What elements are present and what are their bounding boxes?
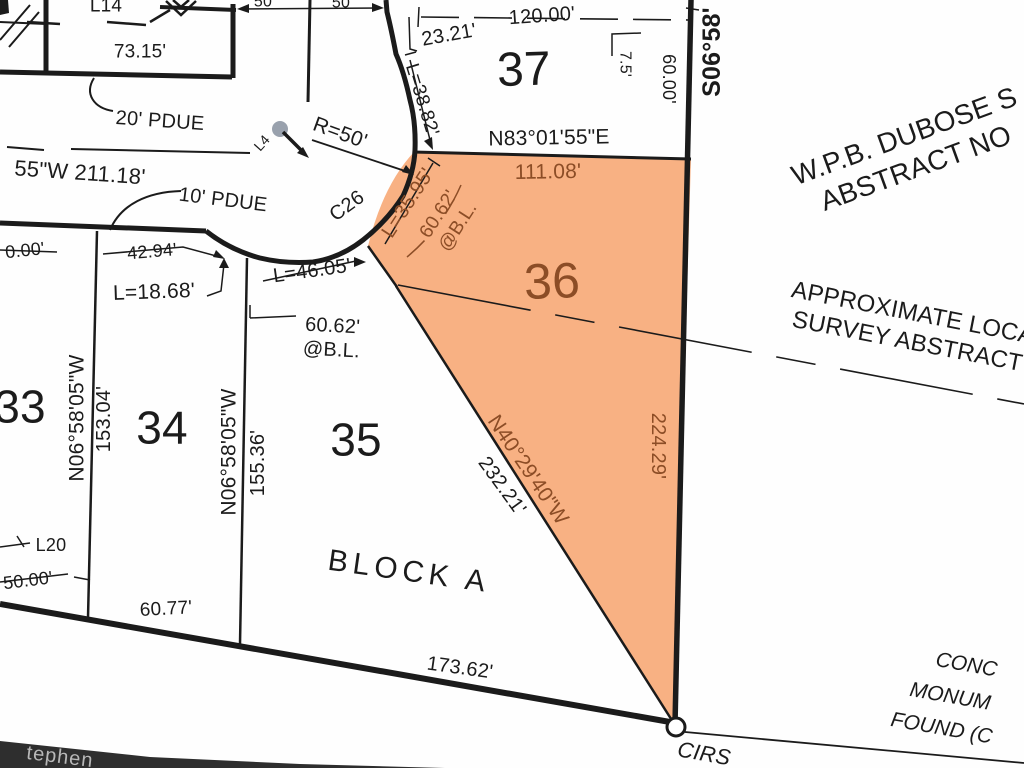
l20-leader xyxy=(0,536,30,547)
dim-arrow-right xyxy=(372,3,384,12)
label-73-15: 73.15' xyxy=(114,42,166,65)
corner-mark xyxy=(0,0,9,15)
plat-map: L14 73.15' 20' PDUE 55"W 211.18' 10' PDU… xyxy=(0,0,1024,768)
label-60-00: 60.00' xyxy=(657,54,679,104)
label-bearing-n83: N83°01'55"E xyxy=(488,124,610,151)
dim-arrow-left xyxy=(237,4,249,13)
label-111-08: 111.08' xyxy=(515,159,582,185)
label-50-left: 50 xyxy=(254,0,272,12)
label-7-5: 7.5' xyxy=(615,51,634,77)
radius-bold-arrow xyxy=(283,132,303,152)
label-42-94: 42.94' xyxy=(126,239,177,265)
label-50-right: 50 xyxy=(332,0,350,13)
arrowhead-4294 xyxy=(213,250,225,259)
lot-line-horizontal xyxy=(0,72,232,77)
cirs-monument-circle xyxy=(667,718,685,736)
bracket-2321 xyxy=(409,17,417,51)
pdue10-leader-curve xyxy=(110,191,181,230)
label-lot35-bl: 60.62' @B.L. xyxy=(302,313,361,364)
label-l20: L20 xyxy=(36,535,67,557)
leader-1868 xyxy=(207,264,224,296)
label-lot-33: 33 xyxy=(0,379,46,434)
label-lot-37: 37 xyxy=(496,40,552,99)
label-0-00: 0.00' xyxy=(4,238,46,264)
lot36-highlight-region xyxy=(368,152,691,722)
label-lot-36: 36 xyxy=(523,250,581,312)
label-60-77: 60.77' xyxy=(139,597,192,623)
label-224-29: 224.29' xyxy=(646,413,670,479)
label-bearing-lot33: N06°58'05"W xyxy=(64,354,89,481)
pdue20-leader-curve xyxy=(90,78,113,111)
label-120-00: 120.00' xyxy=(508,2,576,31)
arrowhead-3882 xyxy=(424,137,433,150)
bracket-6062 xyxy=(250,305,296,318)
south-boundary-line xyxy=(0,604,670,722)
label-lot-35: 35 xyxy=(330,412,382,467)
label-dist-155-36: 155.36' xyxy=(246,430,270,496)
street-south-row-line xyxy=(0,223,206,231)
label-l-18-68: L=18.68' xyxy=(113,278,196,306)
label-bearing-lot34: N06°58'05"W xyxy=(216,388,241,515)
street-centerline xyxy=(308,0,310,102)
arrowhead-1868 xyxy=(219,258,229,268)
label-dist-153-04: 153.04' xyxy=(92,386,116,452)
label-l14: L14 xyxy=(90,0,122,18)
arrowhead-4605 xyxy=(354,257,366,267)
label-bearing-east-boundary: S06°58' xyxy=(697,7,727,97)
label-lot-34: 34 xyxy=(136,400,188,455)
row-line-211 xyxy=(7,147,250,153)
